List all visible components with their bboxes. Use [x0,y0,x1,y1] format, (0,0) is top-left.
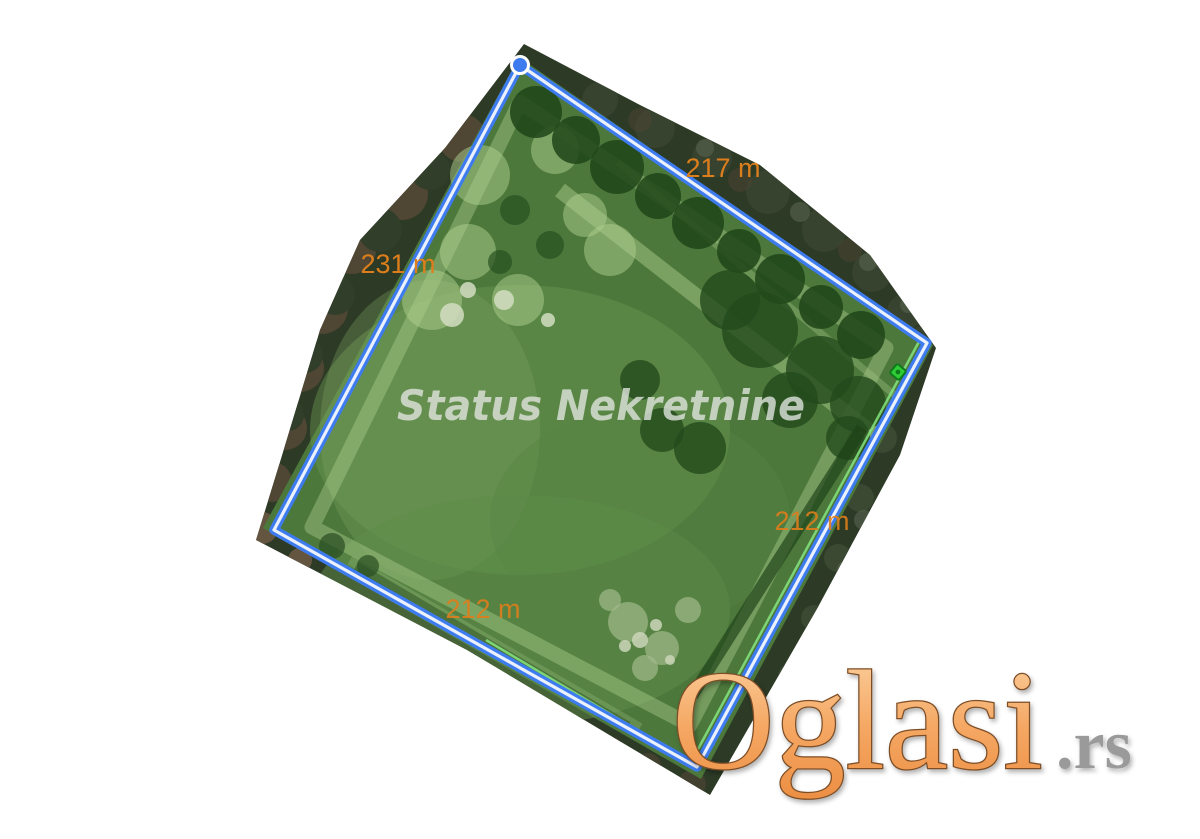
oglasi-logo: Oglasi .rs [672,641,1132,799]
watermark-text: Status Nekretnine [397,381,805,430]
logo-suffix-text: .rs [1056,707,1132,784]
vertex-marker [512,57,529,74]
measurement-label-top-left: 231 m [360,249,435,279]
logo-main-text: Oglasi [672,641,1043,799]
satellite-map-figure: 217 m 231 m 212 m 212 m Status Nekretnin… [0,0,1200,839]
measurement-label-bottom-left: 212 m [445,594,520,624]
listing-image: 217 m 231 m 212 m 212 m Status Nekretnin… [0,0,1200,839]
measurement-label-bottom-right: 212 m [774,506,849,536]
measurement-label-top-right: 217 m [685,153,760,183]
